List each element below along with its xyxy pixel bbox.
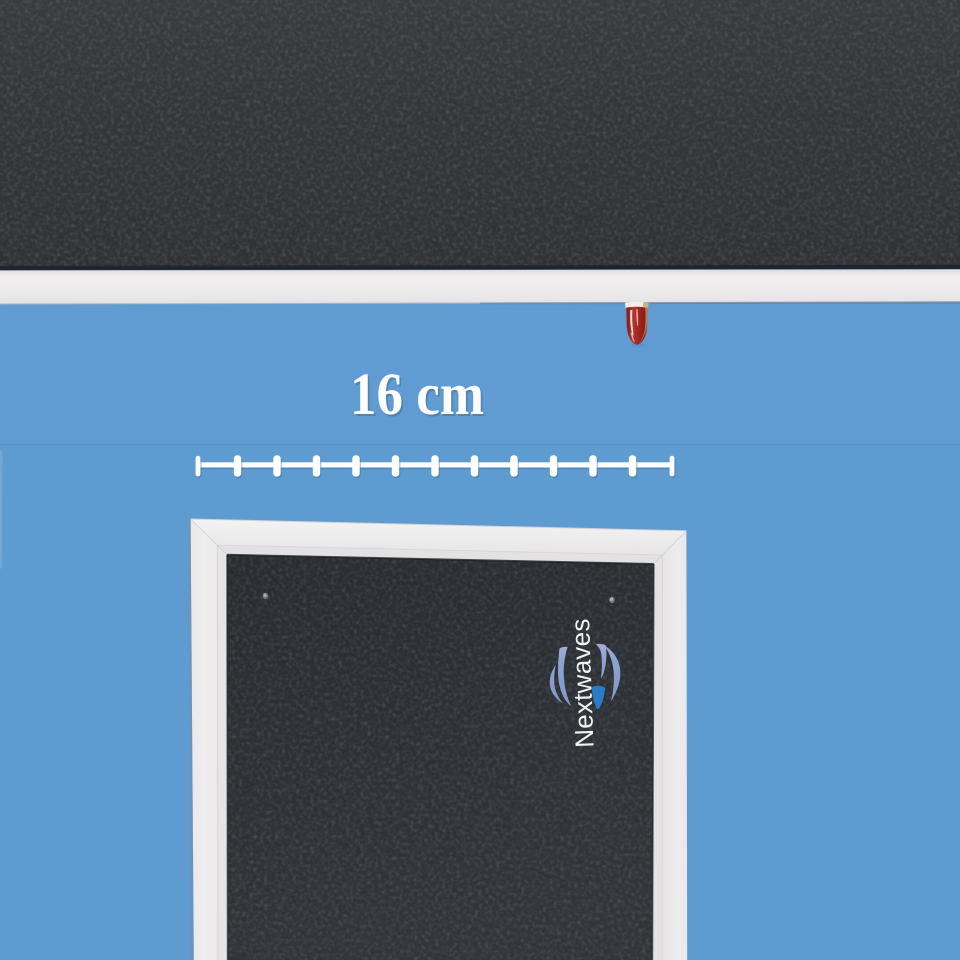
svg-text:16 cm: 16 cm bbox=[350, 361, 484, 427]
svg-text:Nextwaves: Nextwaves bbox=[565, 618, 599, 748]
